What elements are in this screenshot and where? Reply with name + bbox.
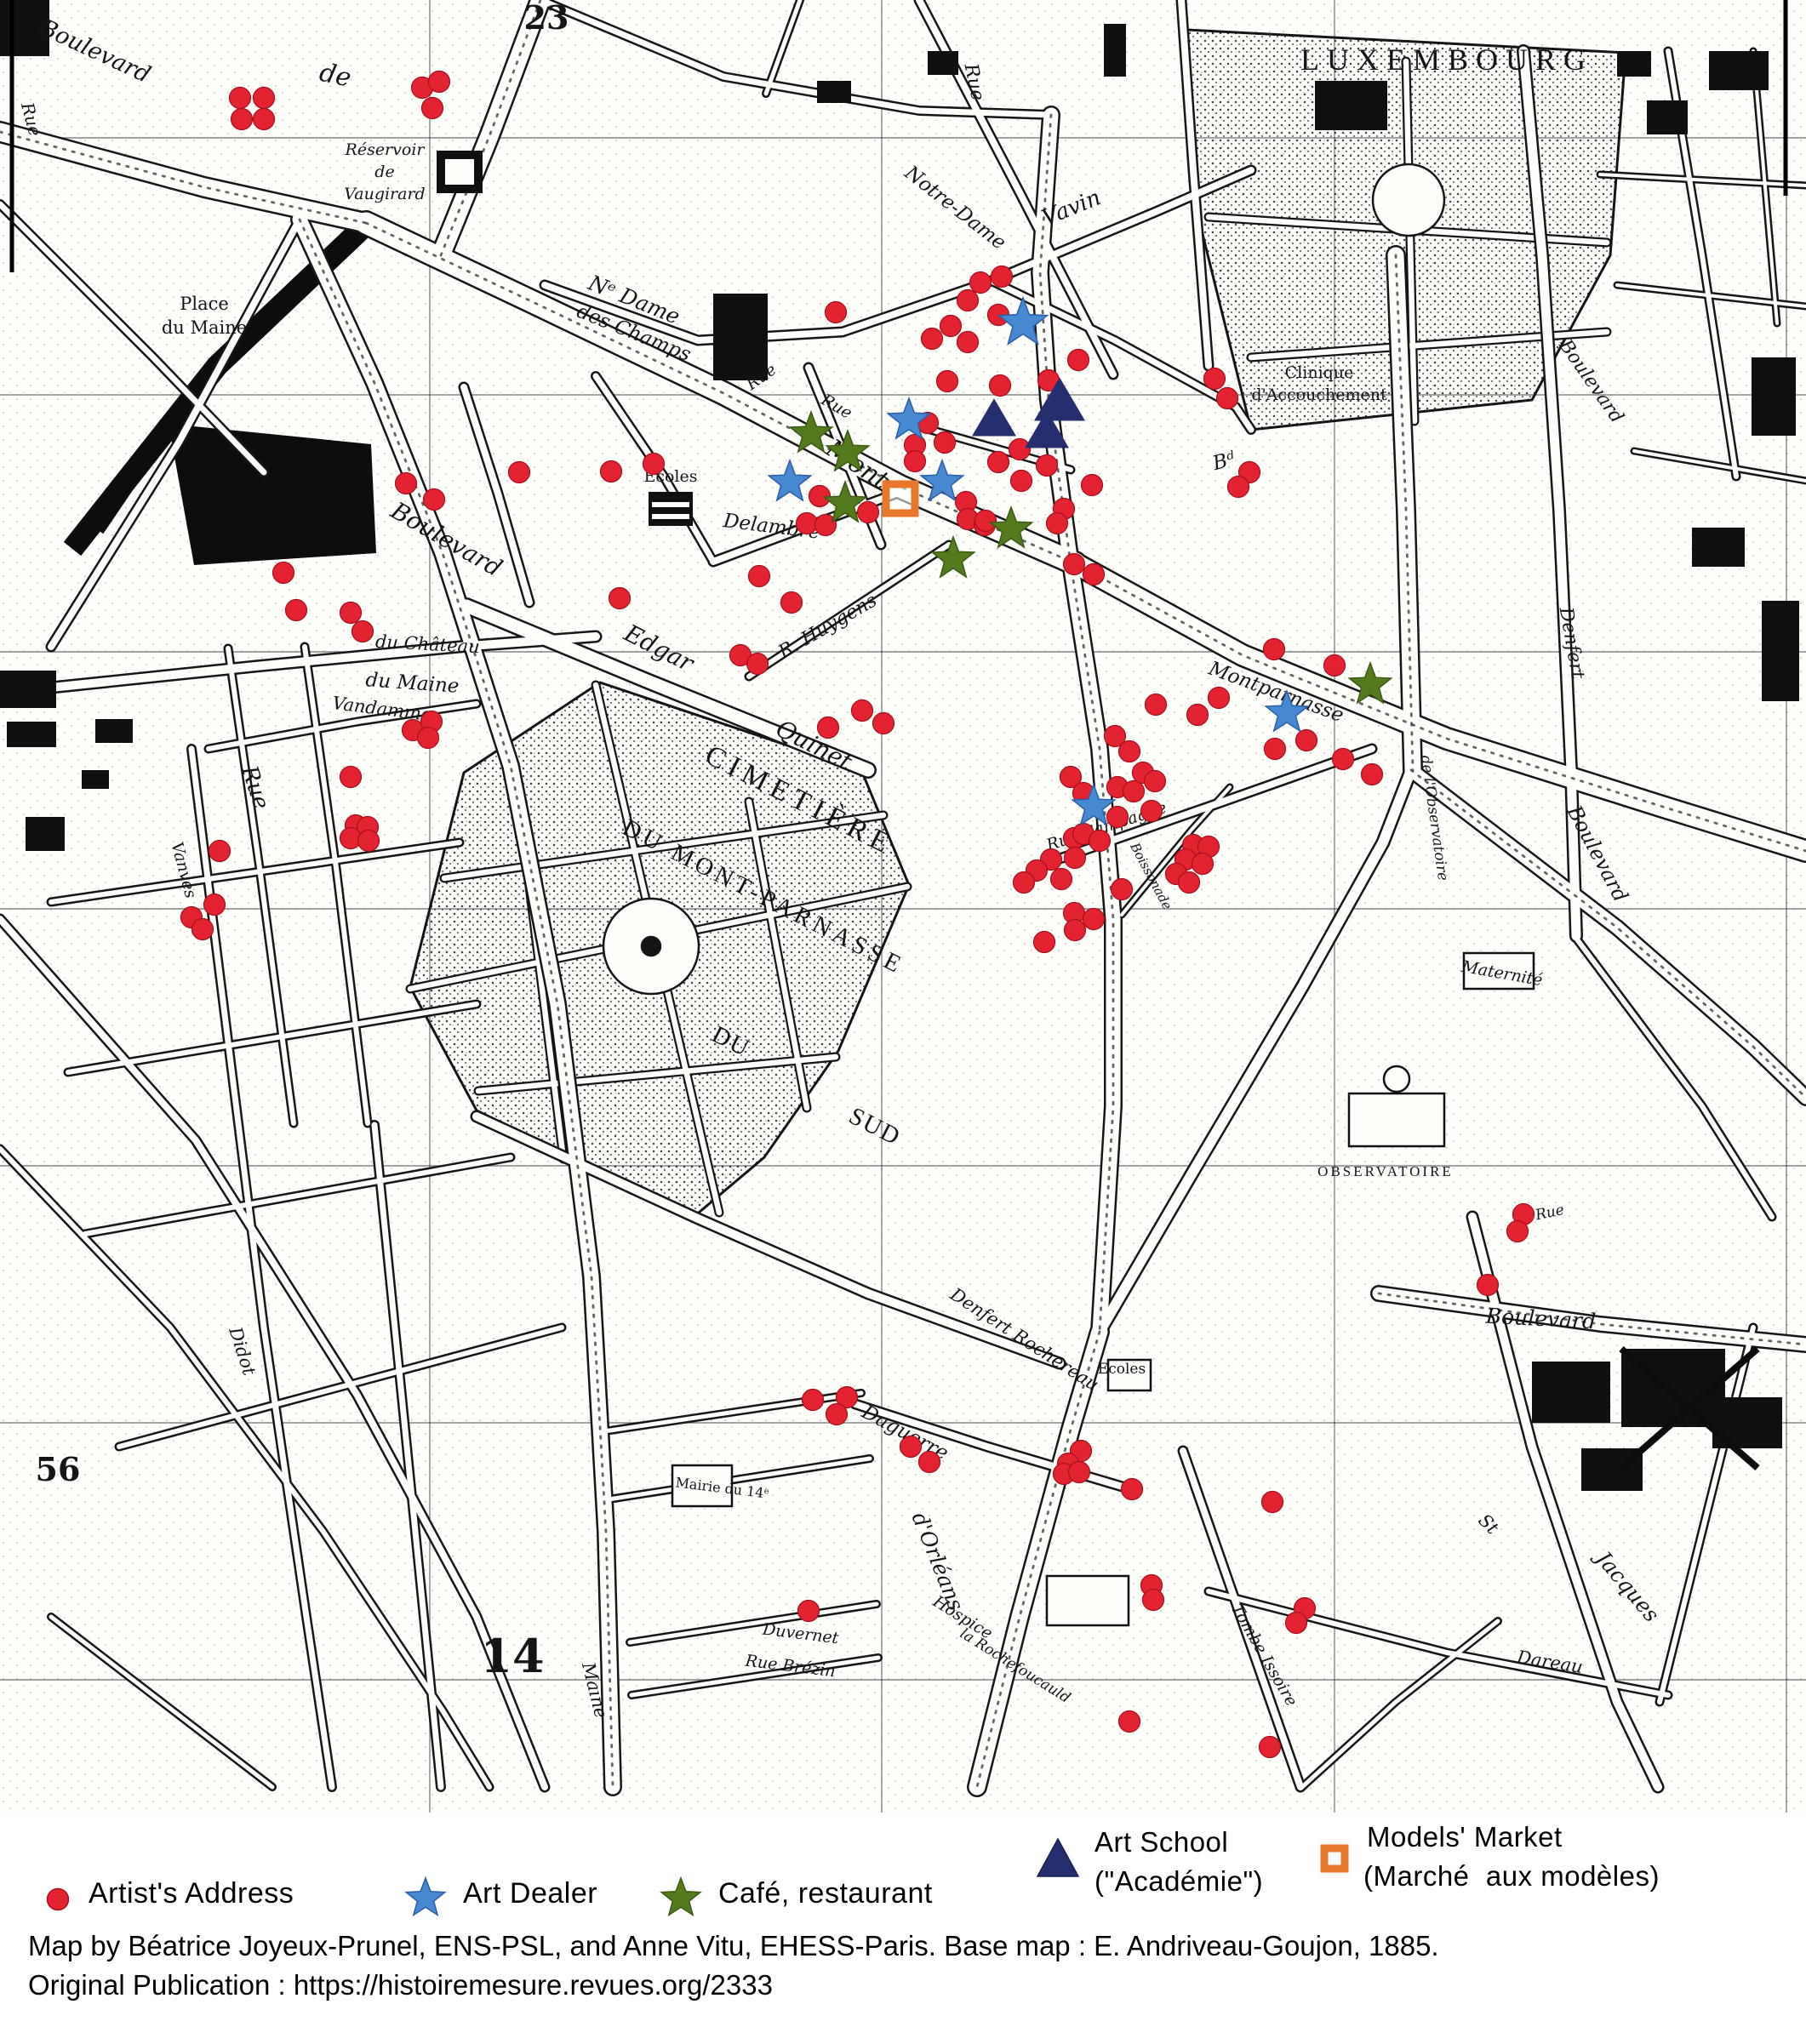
building-block [649, 492, 693, 526]
artist-address-dot [803, 1390, 824, 1411]
map-label: d'Accouchement [1251, 385, 1387, 404]
artist-address-dot [1065, 920, 1086, 941]
building-block [95, 719, 133, 743]
artist-address-dot [204, 894, 226, 916]
artist-address-dot [418, 728, 439, 749]
artist-address-dot [1009, 439, 1031, 460]
attribution-line-2: Original Publication : https://histoirem… [28, 1969, 773, 2001]
legend-label-art-school: Art School [1094, 1826, 1228, 1858]
area-circle [642, 937, 660, 956]
artist-address-dot [422, 98, 443, 119]
building-block [817, 81, 851, 103]
artist-address-dot [643, 454, 665, 475]
artist-address-dot [1112, 879, 1133, 900]
artist-address-dot [970, 272, 992, 294]
artist-address-dot [1324, 655, 1346, 677]
artist-address-dot [1477, 1275, 1499, 1296]
navy-triangle-icon [1037, 1839, 1078, 1876]
artist-address-dot [1209, 688, 1230, 709]
artist-address-dot [747, 654, 769, 675]
art-dealer-legend-icon [403, 1876, 448, 1920]
artist-address-dot [340, 602, 362, 624]
artist-address-dot [781, 592, 803, 614]
artist-address-dot [1143, 1590, 1164, 1611]
artist-address-dot [1217, 388, 1238, 409]
artist-address-dot [509, 462, 530, 483]
artist-address-dot [1260, 1737, 1281, 1758]
artist-address-dot [352, 621, 374, 642]
area-circle [1373, 164, 1444, 236]
building-block [1532, 1362, 1610, 1423]
artist-address-dot [826, 302, 847, 323]
building-block [1709, 51, 1769, 90]
artist-address-dot [1145, 771, 1166, 792]
artist-address-dot [1192, 854, 1214, 875]
models-market-square [886, 484, 915, 513]
artist-address-dot [396, 473, 417, 494]
artist-address-dot [424, 489, 445, 511]
building-detail [652, 514, 689, 519]
artist-address-dot [1119, 741, 1140, 762]
artist-address-dot [1141, 801, 1163, 822]
building-block [1692, 528, 1745, 567]
artist-address-dot [1204, 368, 1226, 390]
building-block [1315, 81, 1387, 130]
building-block [1647, 100, 1688, 134]
blue-star-icon [406, 1878, 445, 1915]
artist-address-dot [852, 700, 873, 722]
artist-address-legend-icon [46, 1887, 70, 1911]
artist-address-dot [1064, 554, 1085, 575]
art-school-legend-icon [1035, 1836, 1081, 1879]
artist-address-dot [1286, 1613, 1307, 1634]
artist-address-dot [798, 1601, 820, 1622]
artist-address-dot [254, 109, 275, 130]
artist-address-dot [230, 88, 251, 109]
map-label: Réservoir [345, 140, 426, 159]
artist-address-dot [940, 316, 962, 337]
green-star-icon [661, 1878, 700, 1915]
models-market-legend-icon [1319, 1843, 1350, 1874]
artist-address-dot [957, 332, 979, 353]
artist-address-dot [1362, 764, 1383, 785]
artist-address-dot [1119, 1711, 1140, 1733]
artist-address-dot [1187, 705, 1209, 726]
artist-address-dot [1265, 739, 1286, 760]
paris-map: LUXEMBOURGCIMETIÈREDU MONT-PARNASSEDUSUD… [0, 0, 1806, 1813]
artist-address-dot [1011, 471, 1032, 492]
artist-address-dot [919, 1452, 940, 1473]
artist-address-dot [1264, 639, 1285, 660]
artist-address-dot [1123, 781, 1145, 802]
artist-address-dot [1507, 1221, 1529, 1242]
map-label: 14 [480, 1629, 544, 1683]
map-label: OBSERVATOIRE [1317, 1163, 1454, 1179]
artist-address-dot [609, 588, 631, 609]
map-label: 23 [524, 0, 569, 37]
gare-montparnasse-building [169, 424, 376, 565]
artist-address-dot [1082, 475, 1103, 496]
artist-address-dot [1228, 477, 1249, 498]
artist-address-dot [1047, 513, 1068, 534]
legend-label-models-market-fr: (Marché aux modèles) [1363, 1860, 1660, 1893]
artist-address-dot [340, 767, 362, 788]
artist-address-dot [1262, 1492, 1283, 1513]
artist-address-dot [1037, 455, 1058, 477]
artist-address-dot [286, 600, 307, 621]
attribution-line-1: Map by Béatrice Joyeux-Prunel, ENS-PSL, … [28, 1930, 1439, 1962]
building-block [26, 817, 65, 851]
artist-address-dot [957, 290, 979, 311]
artist-address-dot [797, 513, 818, 534]
observatoire-dome [1384, 1066, 1409, 1092]
artist-address-dot [937, 371, 958, 392]
legend-label-artist-address: Artist's Address [89, 1877, 294, 1910]
artist-address-dot [1014, 872, 1035, 894]
building-outline [1349, 1093, 1444, 1146]
map-screenshot: LUXEMBOURGCIMETIÈREDU MONT-PARNASSEDUSUD… [0, 0, 1806, 2044]
artist-address-dot [858, 502, 879, 523]
map-label: LUXEMBOURG [1300, 43, 1593, 77]
artist-address-dot [1083, 564, 1105, 585]
artist-address-dot [922, 328, 943, 350]
artist-address-dot [1122, 1479, 1143, 1500]
artist-address-dot [358, 831, 380, 852]
building-outline [1047, 1576, 1129, 1625]
artist-address-dot [900, 1436, 922, 1458]
artist-address-dot [818, 717, 839, 739]
artist-address-dot [1333, 749, 1354, 770]
map-label: Place [180, 294, 229, 314]
map-label: Clinique [1285, 363, 1354, 382]
map-label: 56 [36, 1450, 81, 1488]
artist-address-dot [601, 461, 622, 482]
legend-label-art-dealer: Art Dealer [463, 1877, 597, 1910]
cafe-legend-icon [659, 1876, 703, 1920]
building-block [1762, 601, 1799, 701]
legend-label-art-school-fr: ("Académie") [1094, 1865, 1263, 1898]
models-market-marker [886, 484, 915, 513]
artist-address-dot [905, 451, 926, 472]
building-block [1104, 24, 1126, 77]
building-block [0, 671, 56, 708]
building-block [1752, 357, 1796, 436]
building-detail [445, 159, 474, 185]
artist-address-dot [209, 841, 231, 862]
building-detail [652, 502, 689, 507]
artist-address-dot [873, 713, 894, 734]
building-block [1617, 51, 1651, 77]
artist-address-dot [1065, 848, 1086, 869]
building-block [82, 770, 109, 789]
artist-address-dot [826, 1404, 848, 1425]
map-label: Vaugirard [344, 185, 425, 203]
artist-address-dot [934, 432, 956, 454]
building-block [928, 51, 958, 75]
artist-address-dot [1107, 807, 1129, 828]
map-label: de [374, 163, 394, 181]
building-block [7, 722, 56, 747]
artist-address-dot [192, 919, 214, 940]
artist-address-dot [1051, 869, 1072, 890]
artist-address-dot [254, 88, 275, 109]
artist-address-dot [809, 486, 831, 507]
artist-address-dot [1296, 730, 1317, 751]
legend-label-models-market: Models' Market [1367, 1821, 1563, 1853]
artist-address-dot [1146, 694, 1167, 716]
artist-address-dot [1069, 1462, 1090, 1483]
artist-address-dot [1068, 350, 1089, 371]
artist-address-dot [1089, 831, 1111, 852]
artist-address-dot [749, 566, 770, 587]
map-label: Ecoles [1098, 1361, 1146, 1378]
legend-label-cafe: Café, restaurant [718, 1877, 933, 1910]
artist-address-dot [1179, 872, 1200, 894]
artist-address-dot [975, 511, 997, 532]
artist-address-dot [429, 71, 450, 93]
artist-address-dot [992, 266, 1013, 288]
artist-address-dot [1034, 932, 1055, 953]
map-label: du Maine [162, 317, 247, 338]
artist-address-dot [988, 452, 1009, 473]
orange-square-icon [1324, 1848, 1345, 1869]
artist-address-dot [990, 375, 1011, 397]
artist-address-dot [1083, 909, 1105, 930]
artist-address-dot [273, 562, 294, 584]
artist-address-dot-icon [48, 1889, 69, 1910]
artist-address-dot [231, 109, 253, 130]
